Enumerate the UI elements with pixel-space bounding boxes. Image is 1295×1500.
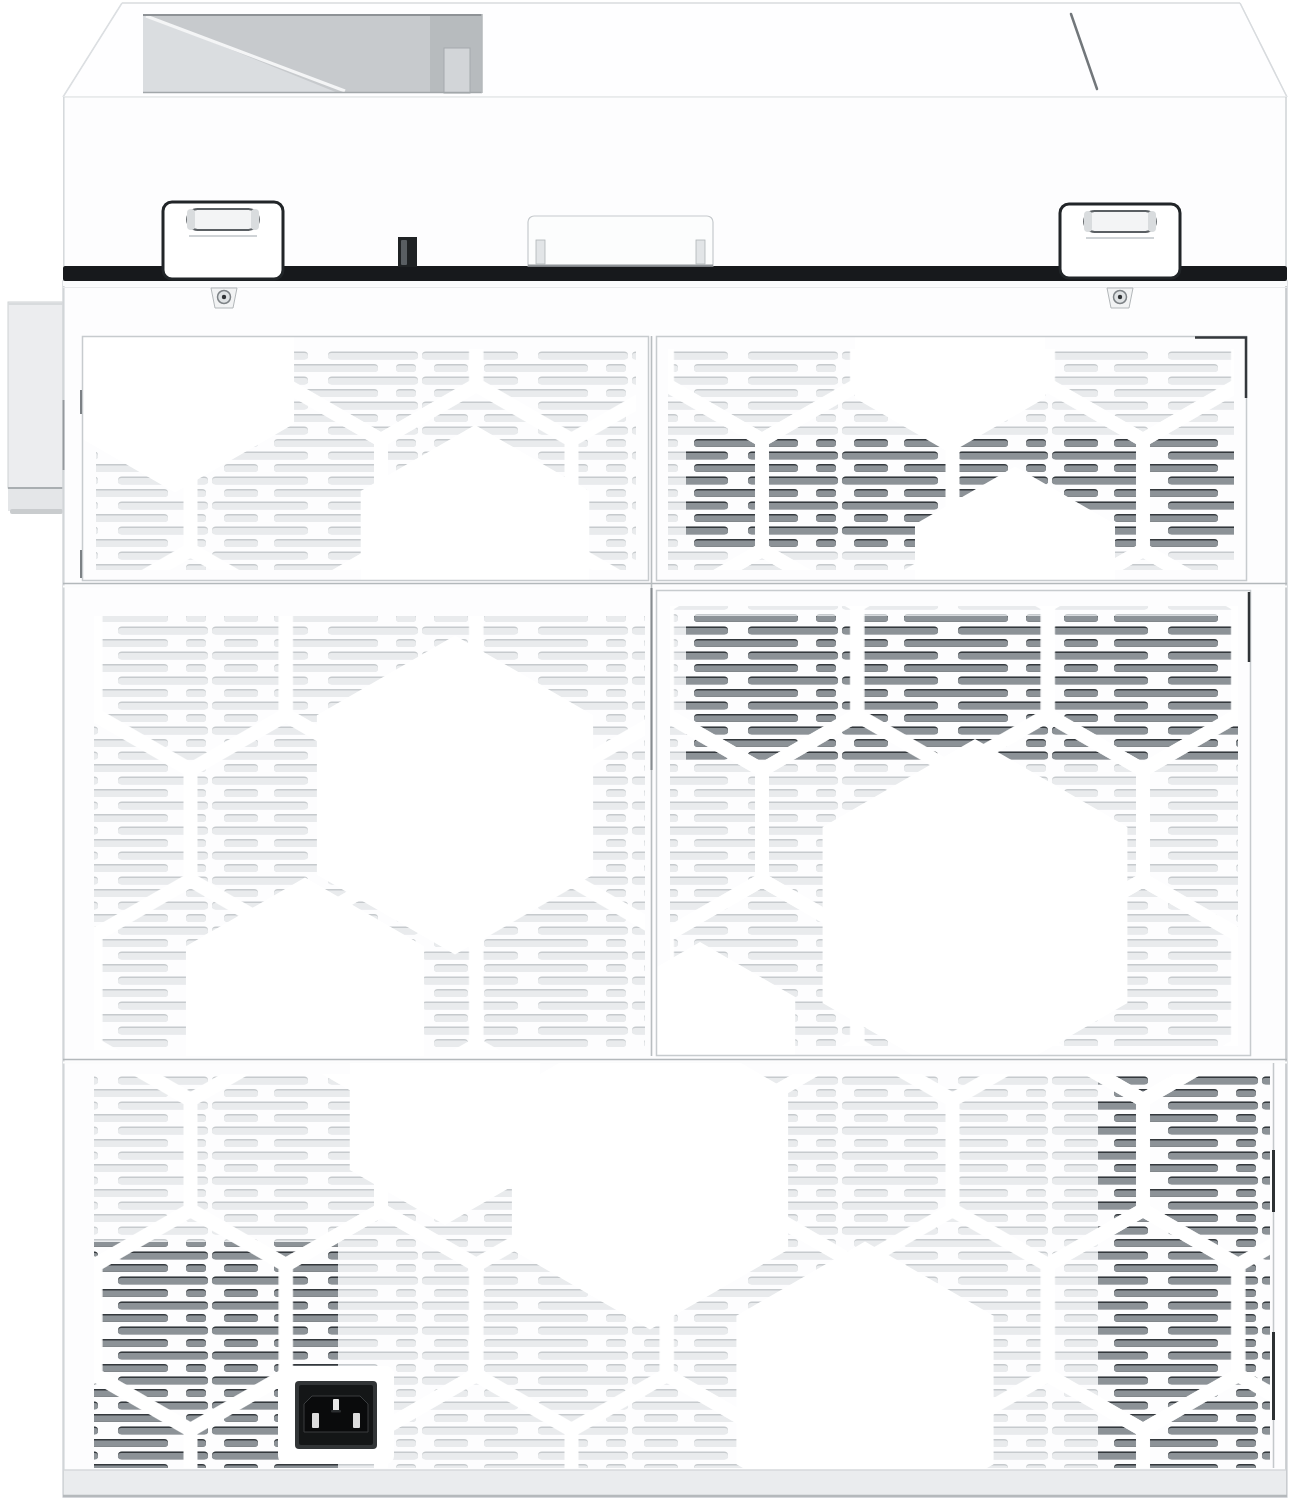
output-recess	[143, 14, 482, 93]
printer-rear-photo	[0, 0, 1295, 1500]
base-strip	[63, 1470, 1287, 1496]
right-hinge	[1060, 204, 1180, 278]
lock-slot	[398, 237, 417, 267]
scene-canvas	[0, 0, 1295, 1500]
adf-handle	[528, 216, 713, 266]
power-inlet	[295, 1381, 377, 1449]
side-tray	[8, 302, 63, 514]
right-screw	[1107, 288, 1133, 308]
left-screw	[211, 288, 237, 308]
top-cover	[63, 3, 1287, 286]
left-hinge	[163, 202, 283, 279]
lower-vent-panel	[94, 1005, 1274, 1500]
printer-body	[56, 218, 1287, 1500]
